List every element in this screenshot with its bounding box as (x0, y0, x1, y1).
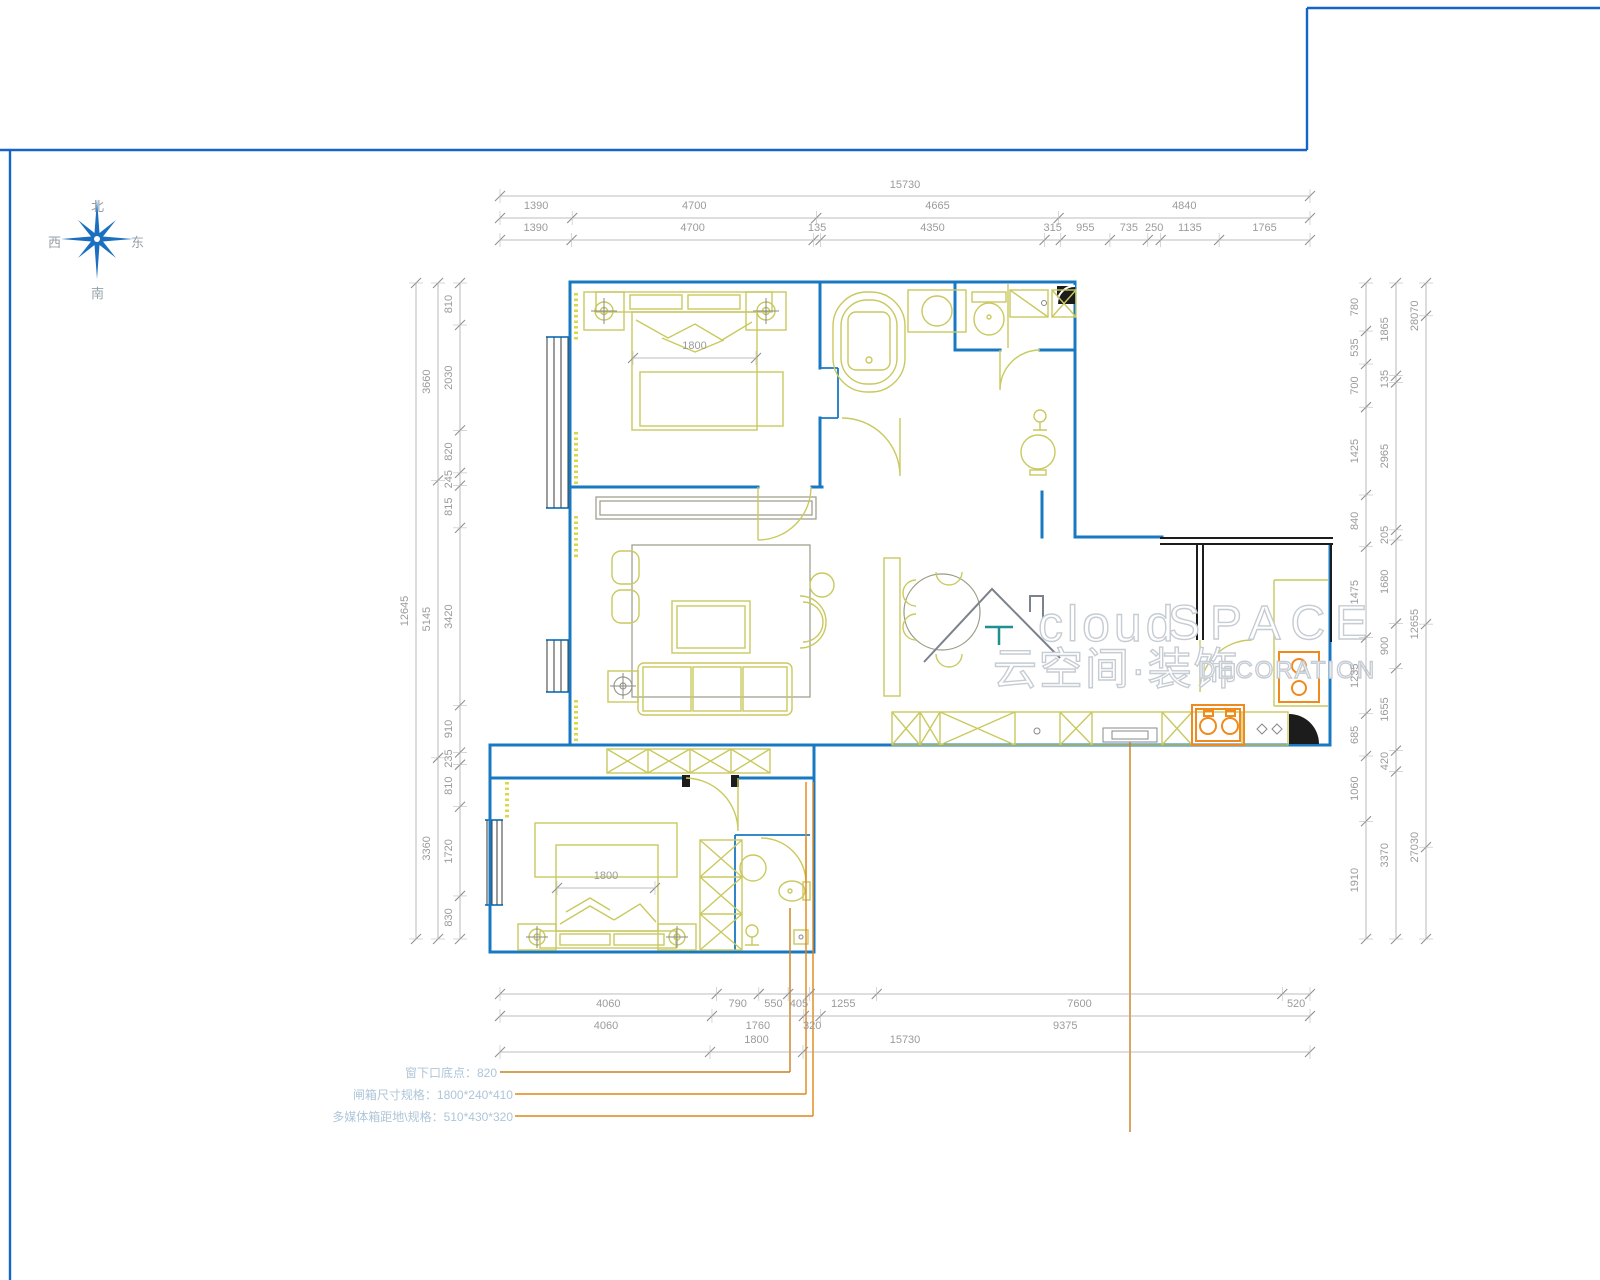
sideboard (884, 558, 900, 696)
dim-label: 205 (1379, 526, 1391, 544)
sofa (638, 663, 792, 715)
note-media-box: 多媒体箱距地\规格：510*430*320 (332, 1108, 513, 1125)
dim-label: 810 (443, 777, 455, 795)
dim-label: 700 (1349, 376, 1361, 394)
dim-label: 4700 (682, 200, 706, 212)
dim-label: 1655 (1379, 697, 1391, 721)
toilet (972, 292, 1006, 335)
dim-label: 1910 (1349, 868, 1361, 892)
rug (632, 545, 810, 697)
dim-label: 1425 (1349, 439, 1361, 463)
dim-label: 820 (443, 442, 455, 460)
dim-label: 910 (443, 720, 455, 738)
dim-label: 4700 (680, 222, 704, 234)
dim-label: 420 (1379, 752, 1391, 770)
dim-label: 810 (443, 295, 455, 313)
dim-label: 3420 (443, 604, 455, 628)
dim-label: 1235 (1349, 663, 1361, 687)
dim-label: 1800 (682, 340, 706, 352)
dim-label: 1060 (1349, 776, 1361, 800)
sink (1103, 728, 1157, 742)
note-window-sill: 窗下口底点：820 (405, 1064, 497, 1081)
watermark: cloud SPACE 云空间·装饰 DECORATION (924, 589, 1377, 694)
dim-label: 4060 (596, 998, 620, 1010)
lamp-icon (591, 298, 617, 324)
dim-label: 7600 (1067, 998, 1091, 1010)
dim-label: 12645 (399, 596, 411, 627)
dim-label: 550 (764, 998, 782, 1010)
dim-label: 1765 (1252, 222, 1276, 234)
dim-label: 780 (1349, 298, 1361, 316)
lamp-icon (526, 926, 548, 948)
dim-label: 1135 (1178, 222, 1202, 234)
washing-machine (1021, 435, 1055, 475)
dim-label: 900 (1379, 637, 1391, 655)
dim-label: 15730 (890, 1034, 921, 1046)
dim-label: 135 (1379, 370, 1391, 388)
dim-label: 735 (1120, 222, 1138, 234)
dim-label: 1475 (1349, 580, 1361, 604)
dim-label: 4840 (1172, 200, 1196, 212)
dim-label: 320 (803, 1020, 821, 1032)
dim-label: 830 (443, 908, 455, 926)
dim-label: 955 (1076, 222, 1094, 234)
faucet-icon (1033, 410, 1047, 430)
dim-label: 790 (729, 998, 747, 1010)
dim-label: 15730 (890, 179, 921, 191)
coffee-table (672, 601, 750, 653)
dim-label: 135 (808, 222, 826, 234)
dim-label: 2965 (1379, 444, 1391, 468)
dim-label: 3360 (421, 836, 433, 860)
dim-label: 1390 (524, 222, 548, 234)
dim-label: 9375 (1053, 1020, 1077, 1032)
dim-label: 1390 (524, 200, 548, 212)
shoe-cabinet (607, 749, 770, 773)
floor-plan-drawing: cloud SPACE 云空间·装饰 DECORATION 1573013904… (0, 0, 1600, 1280)
dim-label: 3660 (421, 369, 433, 393)
tv-cabinet (596, 497, 816, 519)
basin (922, 296, 952, 326)
dim-label: 4060 (594, 1020, 618, 1032)
gas-hob (1192, 705, 1244, 745)
floor-plan-page: cloud SPACE 云空间·装饰 DECORATION 1573013904… (0, 0, 1600, 1280)
dim-label: 250 (1145, 222, 1163, 234)
dim-label: 2030 (443, 365, 455, 389)
dim-label: 315 (1043, 222, 1061, 234)
shower-icon (745, 925, 759, 945)
dim-label: 840 (1349, 512, 1361, 530)
dim-label: 1800 (744, 1034, 768, 1046)
dim-label: 1865 (1379, 317, 1391, 341)
compass-east-label: 东 (131, 232, 144, 251)
watermark-en-prefix: cloud (1038, 596, 1178, 652)
note-box-size: 闸箱尺寸规格：1800*240*410 (353, 1086, 513, 1103)
dining-table (904, 574, 980, 650)
dim-label: 405 (790, 998, 808, 1010)
dim-label: 4665 (925, 200, 949, 212)
dim-label: 5145 (421, 607, 433, 631)
dim-label: 235 (443, 749, 455, 767)
dim-label: 1760 (746, 1020, 770, 1032)
compass-south-label: 南 (91, 283, 104, 302)
dim-label: 520 (1287, 998, 1305, 1010)
dining-set (884, 558, 980, 696)
basin (740, 855, 766, 881)
lamp-icon (666, 926, 688, 948)
bedroom2-furniture (507, 782, 742, 950)
dim-label: 1255 (831, 998, 855, 1010)
dim-label: 815 (443, 498, 455, 516)
dim-label: 685 (1349, 726, 1361, 744)
dim-label: 1800 (594, 870, 618, 882)
dim-label: 3370 (1379, 843, 1391, 867)
kitchen-corner (1289, 714, 1319, 744)
bathtub (833, 292, 905, 392)
armchair (800, 573, 834, 648)
bathroom2-fixtures (740, 855, 810, 945)
living-room-furniture (576, 497, 834, 773)
bedroom1-furniture (576, 292, 786, 484)
dim-label: 1720 (443, 839, 455, 863)
dim-label: 4350 (920, 222, 944, 234)
watermark-en-main: SPACE (1168, 597, 1377, 650)
dim-label: 1680 (1379, 570, 1391, 594)
compass-north-label: 北 (91, 196, 104, 215)
dim-label: 535 (1349, 338, 1361, 356)
compass-west-label: 西 (48, 232, 61, 251)
